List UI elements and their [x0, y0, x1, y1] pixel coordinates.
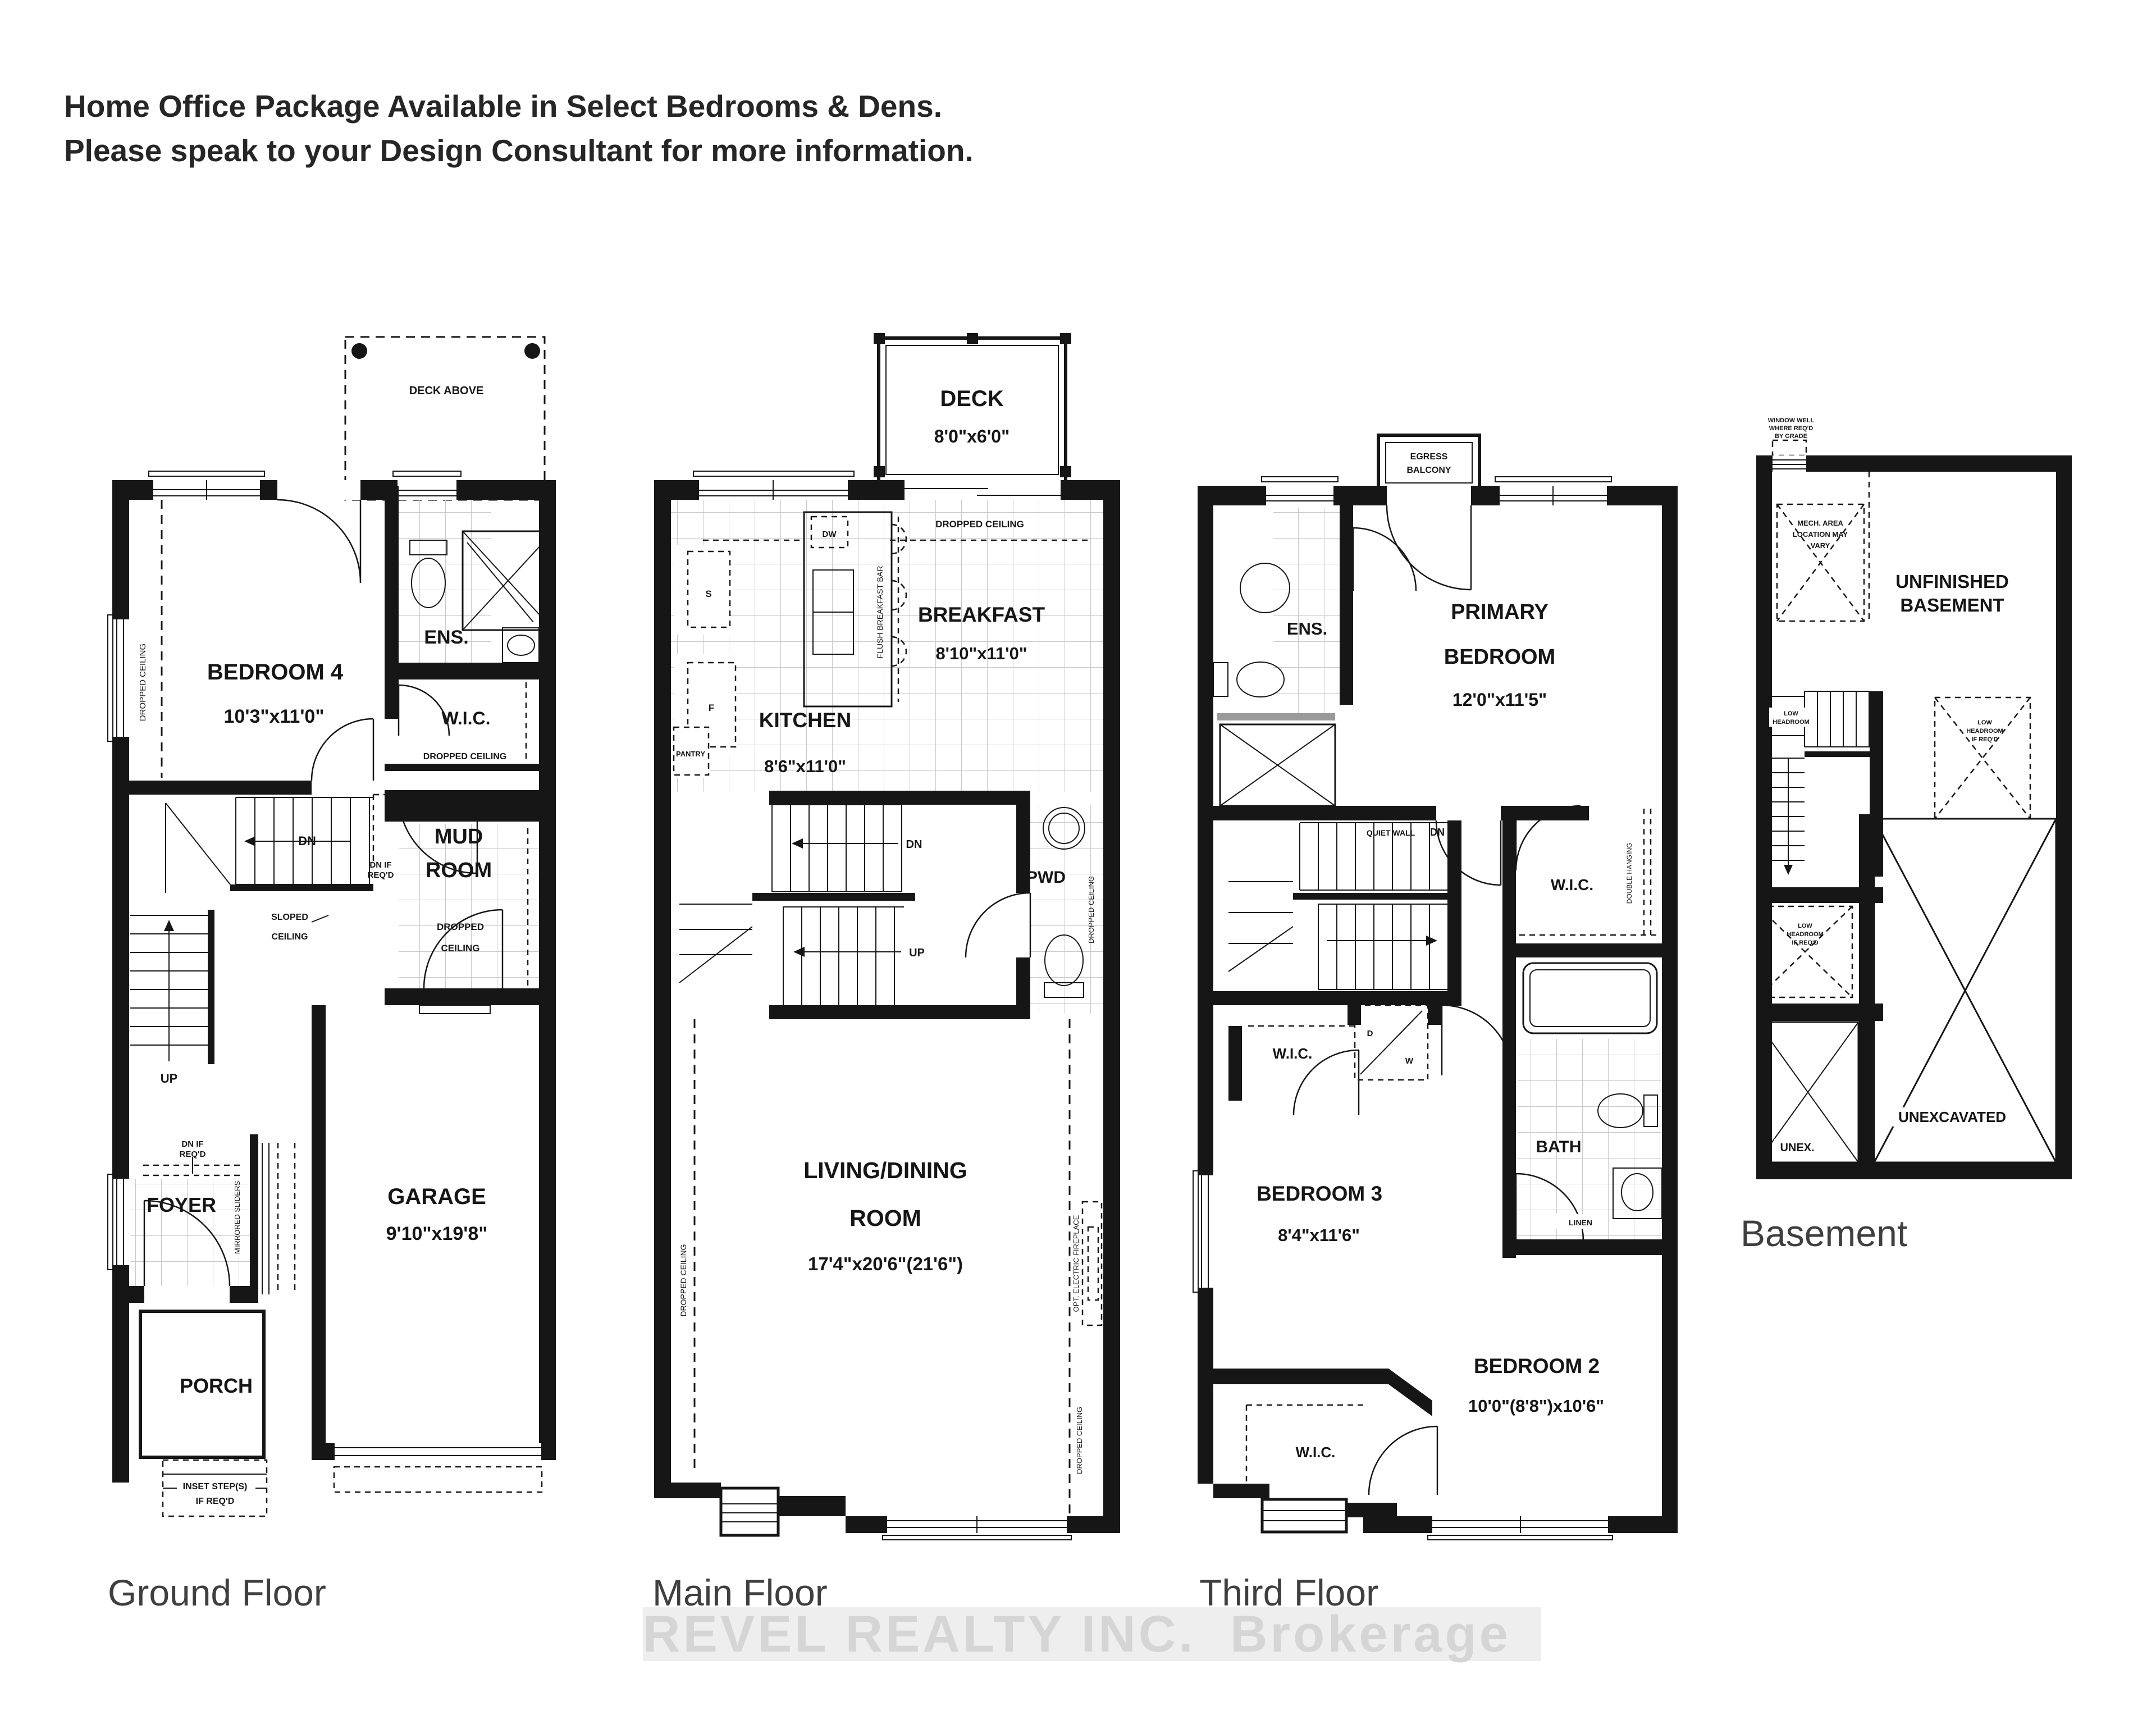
third-bottom-walls	[1213, 1484, 1678, 1540]
main-kitchen-label: KITCHEN	[759, 709, 851, 732]
main-breakfast-bar-label: FLUSH BREAKFAST BAR	[875, 566, 884, 659]
third-egress-label2: BALCONY	[1406, 466, 1451, 475]
ground-dnif-label2: REQ'D	[368, 870, 394, 880]
ground-inset-label2: IF REQ'D	[196, 1497, 235, 1506]
ground-foyer-label: FOYER	[147, 1193, 216, 1216]
ground-sloped-leader	[312, 915, 328, 922]
third-dryer-label: D	[1367, 1029, 1373, 1038]
third-wic-bed2	[1246, 1405, 1437, 1495]
basement-low-headroom-left	[1758, 906, 1852, 997]
third-primary-door	[1436, 806, 1501, 885]
basement-lhr-label3: IF REQ'D	[1971, 736, 1998, 743]
ground-floor-title: Ground Floor	[108, 1571, 326, 1614]
ground-bedroom4-label: BEDROOM 4	[207, 660, 344, 685]
third-primary-wic-label: W.I.C.	[1551, 876, 1593, 893]
basement-unexcavated-label: UNEXCAVATED	[1898, 1109, 2006, 1125]
main-stairs	[679, 791, 1016, 1019]
basement-walls	[1756, 455, 2072, 1179]
basement-lhl-label1: LOW	[1798, 923, 1812, 929]
third-bedroom2-dims: 10'0"(8'8")x10'6"	[1468, 1396, 1604, 1416]
basement-low-headroom-label2: HEADROOM	[1773, 719, 1809, 726]
ground-floor-plan: DECK ABOVE DROPPED CEILING BEDROOM 4 10'…	[109, 331, 564, 1533]
basement-low-headroom-label1: LOW	[1784, 710, 1798, 717]
ground-bedroom4-door-arc	[312, 719, 373, 781]
third-ensuite	[1213, 486, 1416, 820]
ground-deck-above-label: DECK ABOVE	[409, 385, 484, 397]
ground-dnif2-label1: DN IF	[181, 1139, 203, 1149]
basement-low-headroom-right	[1935, 697, 2030, 819]
header-note: Home Office Package Available in Select …	[64, 84, 974, 173]
ground-up-label: UP	[161, 1071, 178, 1086]
basement-unex-label: UNEX.	[1780, 1142, 1814, 1154]
basement-lhr-label2: HEADROOM	[1966, 728, 2003, 735]
basement-lhr-label1: LOW	[1977, 719, 1992, 726]
main-kitchen-dims: 8'6"x11'0"	[764, 756, 846, 776]
main-dw-label: DW	[823, 530, 837, 539]
ground-ens-bottom-wall	[385, 663, 556, 679]
main-pwd-label: PWD	[1026, 868, 1066, 887]
ground-bedroom4-bottom-wall	[126, 781, 312, 795]
ground-wic-shelf-wall	[385, 764, 556, 771]
third-bedroom3-label: BEDROOM 3	[1257, 1182, 1382, 1205]
third-stairs	[1213, 820, 1461, 1006]
ground-garage	[312, 1005, 556, 1492]
third-wic-bed2-label: W.I.C.	[1296, 1444, 1336, 1461]
header-note-line2: Please speak to your Design Consultant f…	[64, 129, 974, 173]
basement-unfinished-label1: UNFINISHED	[1895, 571, 2009, 592]
basement-window-well-label1: WINDOW WELL	[1768, 417, 1815, 424]
third-wic-bed3-label: W.I.C.	[1273, 1045, 1313, 1062]
third-floor-plan: EGRESS BALCONY ENS. PRIMARY BEDROOM 12'0…	[1195, 331, 1683, 1561]
basement-unfinished-label2: BASEMENT	[1900, 595, 2004, 615]
ground-ens-label: ENS.	[424, 627, 468, 648]
main-living-label2: ROOM	[849, 1205, 921, 1231]
third-dn-label: DN	[1430, 827, 1445, 838]
main-deck-dims: 8'0"x6'0"	[934, 426, 1010, 446]
main-fireplace	[1082, 1202, 1102, 1325]
basement-mech-label2: LOCATION MAY	[1793, 530, 1848, 539]
third-linen-label: LINEN	[1569, 1218, 1592, 1227]
main-breakfast-label: BREAKFAST	[918, 603, 1045, 626]
main-sink-label: S	[705, 589, 711, 599]
header-note-line1: Home Office Package Available in Select …	[64, 84, 974, 129]
third-washer-label: W	[1405, 1056, 1414, 1066]
main-dropped-ceiling-left: DROPPED CEILING	[679, 1244, 688, 1316]
ground-mud-label1: MUD	[435, 825, 483, 849]
main-floor-plan: DECK 8'0"x6'0" DROPPED CEILING DW FLUSH …	[651, 331, 1123, 1561]
ground-mud-note1: DROPPED	[437, 922, 484, 932]
basement-divider-wall	[1859, 814, 1874, 1179]
main-fridge-label: F	[709, 703, 714, 713]
third-ens-label: ENS.	[1287, 619, 1327, 638]
main-up-label: UP	[909, 947, 925, 959]
third-wic-bed3	[1228, 1026, 1359, 1115]
ground-sliders-label: MIRRORED SLIDERS	[233, 1181, 241, 1254]
floor-plan-sheet: { "header": { "line1": "Home Office Pack…	[0, 0, 2156, 1724]
brokerage-watermark: REVEL REALTY INC. Brokerage	[643, 1607, 1541, 1661]
third-primary-label2: BEDROOM	[1444, 645, 1555, 669]
ground-deck-above-outline	[345, 337, 545, 500]
ground-wic-label: W.I.C.	[441, 708, 490, 728]
ground-garage-dims: 9'10"x19'8"	[386, 1223, 488, 1244]
main-dropped-ceiling-top: DROPPED CEILING	[935, 519, 1024, 530]
basement-mech-label1: MECH. AREA	[1797, 519, 1843, 527]
ground-sloped-label2: CEILING	[272, 932, 308, 942]
ground-dropped-ceiling-left-label: DROPPED CEILING	[138, 644, 148, 721]
basement-lhl-label3: IF REQ'D	[1792, 939, 1818, 946]
basement-window-well-box	[1773, 440, 1806, 455]
ground-garage-label: GARAGE	[387, 1184, 486, 1209]
main-powder-room	[966, 791, 1103, 1019]
third-bedroom3-dims: 8'4"x11'6"	[1278, 1225, 1360, 1245]
ground-wic-bottom-wall	[385, 790, 556, 822]
ground-mud-note2: CEILING	[441, 943, 480, 954]
third-bath-label: BATH	[1536, 1138, 1581, 1156]
main-bottom-walls	[654, 1483, 1103, 1540]
basement-window-well-label2: WHERE REQ'D	[1769, 425, 1813, 432]
ground-inset-label1: INSET STEP(S)	[183, 1482, 248, 1492]
main-living-dims: 17'4"x20'6"(21'6")	[808, 1253, 963, 1274]
main-dropped-ceiling-right: DROPPED CEILING	[1075, 1407, 1084, 1474]
ground-ensuite	[385, 486, 554, 736]
ground-wic-note: DROPPED CEILING	[423, 752, 506, 761]
basement-window-well-label3: BY GRADE	[1775, 433, 1807, 440]
main-pwd-dropped-ceiling: DROPPED CEILING	[1087, 876, 1095, 943]
main-pantry-label: PANTRY	[676, 750, 705, 758]
ground-sliders-closet	[250, 1134, 295, 1303]
third-double-hanging-label: DOUBLE HANGING	[1625, 843, 1633, 904]
main-breakfast-dims: 8'10"x11'0"	[935, 644, 1027, 663]
main-fireplace-label: OPT. ELECTRIC FIREPLACE	[1072, 1215, 1080, 1312]
basement-mech-label3: VARY	[1811, 541, 1830, 550]
ground-stairs	[130, 797, 373, 1064]
third-bedroom2-label: BEDROOM 2	[1474, 1354, 1600, 1378]
main-living-label1: LIVING/DINING	[803, 1157, 967, 1183]
ground-bedroom4-dims: 10'3"x11'0"	[224, 706, 325, 727]
third-primary-label1: PRIMARY	[1451, 600, 1549, 624]
third-egress-balcony	[1378, 435, 1479, 490]
basement-lhl-label2: HEADROOM	[1787, 931, 1823, 938]
ground-dnif-label1: DN IF	[369, 860, 391, 870]
ground-porch-label: PORCH	[180, 1374, 253, 1397]
ground-mud-room	[385, 824, 556, 1014]
main-dn-label: DN	[906, 838, 922, 851]
third-egress-label1: EGRESS	[1410, 452, 1448, 462]
third-primary-dims: 12'0"x11'5"	[1452, 690, 1547, 710]
third-bath	[1502, 957, 1662, 1258]
ground-sloped-label1: SLOPED	[271, 913, 308, 922]
basement-title: Basement	[1741, 1212, 1907, 1255]
main-deck-label: DECK	[940, 386, 1003, 411]
basement-plan: WINDOW WELL WHERE REQ'D BY GRADE MECH. A…	[1739, 393, 2088, 1191]
main-kitchen-breakfast	[671, 500, 1103, 792]
ground-dn-label: DN	[298, 834, 316, 848]
